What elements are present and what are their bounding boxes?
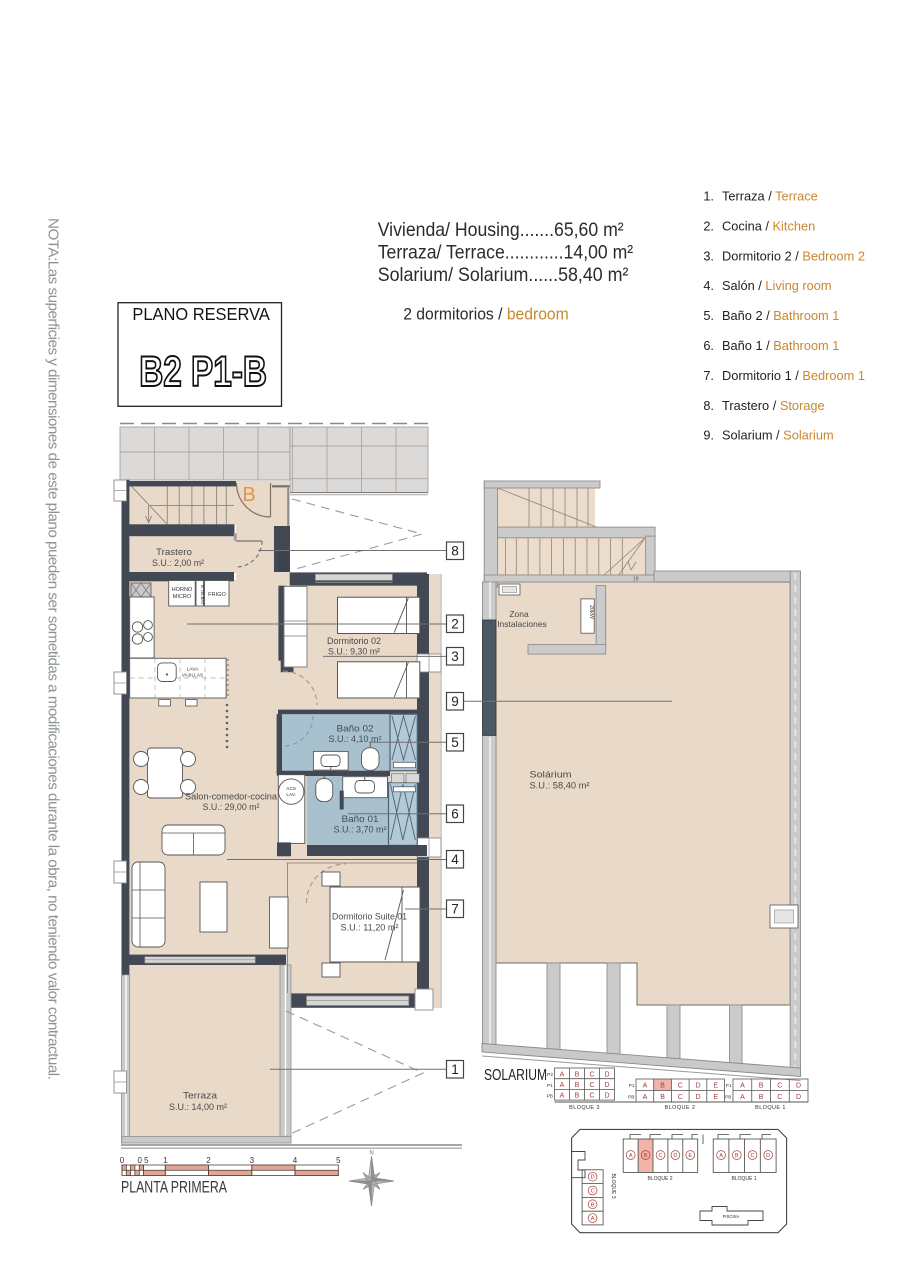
svg-text:B: B	[575, 1072, 580, 1079]
svg-text:D: D	[604, 1093, 609, 1100]
svg-text:8.: 8.	[703, 398, 714, 413]
svg-text:PLANTA PRIMERA: PLANTA PRIMERA	[121, 1179, 227, 1197]
svg-text:9.: 9.	[703, 428, 714, 443]
svg-text:5.: 5.	[703, 308, 714, 323]
svg-text:D: D	[695, 1094, 700, 1101]
svg-text:BLOQUE 2: BLOQUE 2	[647, 1176, 672, 1182]
svg-text:S.U.: 9,30 m²: S.U.: 9,30 m²	[328, 647, 380, 658]
svg-text:A: A	[643, 1094, 648, 1101]
svg-text:D: D	[591, 1175, 595, 1181]
svg-text:A: A	[740, 1083, 745, 1090]
svg-text:B: B	[660, 1083, 665, 1090]
svg-text:LAVA: LAVA	[187, 667, 199, 673]
svg-text:A: A	[719, 1153, 723, 1159]
svg-text:7.: 7.	[703, 368, 714, 383]
svg-text:PLANO RESERVA: PLANO RESERVA	[132, 304, 270, 324]
svg-text:4: 4	[451, 852, 459, 867]
svg-text:8: 8	[451, 544, 459, 559]
svg-text:C: C	[658, 1153, 662, 1159]
svg-text:D: D	[673, 1153, 677, 1159]
svg-text:B: B	[575, 1093, 580, 1100]
svg-text:Zona: Zona	[509, 609, 529, 619]
svg-text:A: A	[629, 1153, 633, 1159]
svg-text:B: B	[759, 1094, 764, 1101]
svg-text:3: 3	[250, 1156, 255, 1165]
svg-text:Terraza: Terraza	[183, 1091, 218, 1102]
svg-text:FRIGO: FRIGO	[208, 592, 226, 598]
svg-text:P1: P1	[547, 1083, 553, 1089]
svg-text:1.: 1.	[703, 189, 714, 204]
svg-text:A: A	[560, 1093, 565, 1100]
svg-text:S.U.: 29,00 m²: S.U.: 29,00 m²	[203, 802, 260, 813]
svg-text:S.U.: 3,70 m²: S.U.: 3,70 m²	[334, 825, 387, 835]
svg-text:C: C	[591, 1189, 595, 1195]
svg-text:HORNO: HORNO	[172, 587, 193, 593]
svg-text:C: C	[678, 1094, 683, 1101]
svg-text:0 5: 0 5	[137, 1156, 149, 1165]
svg-text:Vivienda/ Housing.......65,60: Vivienda/ Housing.......65,60 m²	[378, 219, 624, 241]
svg-text:4.: 4.	[703, 278, 714, 293]
svg-text:B: B	[660, 1094, 665, 1101]
svg-text:C: C	[777, 1083, 782, 1090]
svg-text:Trastero / Storage: Trastero / Storage	[722, 398, 825, 413]
svg-text:Baño 02: Baño 02	[337, 724, 374, 734]
svg-text:P2: P2	[547, 1072, 553, 1078]
svg-text:20kW: 20kW	[588, 605, 594, 620]
svg-text:Cocina / Kitchen: Cocina / Kitchen	[722, 218, 815, 233]
svg-text:4: 4	[293, 1156, 298, 1165]
svg-text:C: C	[777, 1094, 782, 1101]
svg-text:Baño 1 / Bathroom 1: Baño 1 / Bathroom 1	[722, 338, 839, 353]
svg-text:E: E	[713, 1094, 718, 1101]
svg-text:6.: 6.	[703, 338, 714, 353]
svg-text:B: B	[591, 1202, 595, 1208]
svg-text:A: A	[643, 1083, 648, 1090]
svg-text:PB: PB	[725, 1095, 731, 1101]
svg-text:B2 P1-B: B2 P1-B	[139, 348, 267, 396]
svg-text:D: D	[695, 1083, 700, 1090]
svg-text:Terraza/ Terrace............14: Terraza/ Terrace............14,00 m²	[378, 241, 634, 263]
svg-text:S.U.: 58,40 m²: S.U.: 58,40 m²	[530, 781, 590, 792]
svg-text:NOTA:Las superficies y dimensi: NOTA:Las superficies y dimensiones de es…	[45, 218, 62, 1079]
svg-text:Solarium / Solarium: Solarium / Solarium	[722, 428, 834, 443]
svg-text:A: A	[740, 1094, 745, 1101]
svg-text:BLOQUE 3: BLOQUE 3	[610, 1173, 616, 1198]
svg-text:BLOQUE 1: BLOQUE 1	[731, 1176, 756, 1182]
svg-text:Solarium/ Solarium......58,40: Solarium/ Solarium......58,40 m²	[378, 264, 629, 286]
svg-text:D: D	[766, 1153, 770, 1159]
svg-text:P1: P1	[629, 1083, 635, 1089]
svg-text:9: 9	[451, 694, 459, 709]
svg-text:D: D	[604, 1082, 609, 1089]
svg-text:Solárium: Solárium	[530, 770, 572, 781]
svg-text:0: 0	[120, 1156, 125, 1165]
svg-text:S.U.: 2,00 m²: S.U.: 2,00 m²	[152, 558, 204, 569]
svg-text:PISCINA: PISCINA	[723, 1214, 740, 1219]
svg-text:7: 7	[451, 902, 459, 917]
svg-text:B: B	[735, 1153, 739, 1159]
svg-text:Dormitorio 02: Dormitorio 02	[327, 636, 381, 647]
svg-text:S.U.: 11,20 m²: S.U.: 11,20 m²	[341, 923, 399, 934]
svg-text:1: 1	[163, 1156, 168, 1165]
svg-text:5: 5	[451, 735, 459, 750]
svg-text:BLOQUE 1: BLOQUE 1	[755, 1105, 786, 1111]
svg-text:1: 1	[451, 1062, 459, 1077]
svg-text:B: B	[575, 1082, 580, 1089]
svg-text:VAJILLAS: VAJILLAS	[182, 673, 204, 679]
svg-text:A: A	[591, 1216, 595, 1222]
svg-text:19: 19	[633, 577, 639, 583]
svg-text:6: 6	[451, 807, 459, 822]
svg-text:3: 3	[451, 649, 459, 664]
svg-text:2: 2	[206, 1156, 211, 1165]
svg-text:Dormitorio 2 / Bedroom 2: Dormitorio 2 / Bedroom 2	[722, 248, 865, 263]
svg-text:D: D	[796, 1083, 801, 1090]
svg-text:A: A	[560, 1082, 565, 1089]
svg-text:B: B	[644, 1153, 648, 1159]
svg-text:C: C	[589, 1072, 594, 1079]
svg-text:BLOQUE 3: BLOQUE 3	[569, 1105, 600, 1111]
svg-text:Terraza / Terrace: Terraza / Terrace	[722, 189, 818, 204]
svg-text:C: C	[589, 1093, 594, 1100]
svg-text:Dormitorio Suite 01: Dormitorio Suite 01	[332, 912, 407, 923]
svg-text:LAV.: LAV.	[286, 792, 296, 798]
svg-text:3.: 3.	[703, 248, 714, 263]
svg-text:P1: P1	[726, 1083, 732, 1089]
svg-text:Salon-comedor-cocina: Salon-comedor-cocina	[185, 792, 278, 803]
svg-text:C: C	[678, 1083, 683, 1090]
svg-text:E: E	[688, 1153, 692, 1159]
svg-text:E: E	[713, 1083, 718, 1090]
svg-text:Instalaciones: Instalaciones	[497, 619, 547, 629]
svg-text:B: B	[242, 484, 255, 506]
svg-text:Dormitorio 1 / Bedroom 1: Dormitorio 1 / Bedroom 1	[722, 368, 865, 383]
svg-text:Baño 01: Baño 01	[342, 814, 379, 824]
svg-text:MICRO: MICRO	[173, 594, 192, 600]
svg-text:N: N	[369, 1151, 373, 1157]
svg-text:Trastero: Trastero	[156, 547, 192, 558]
svg-text:PB: PB	[547, 1094, 553, 1100]
svg-text:D: D	[796, 1094, 801, 1101]
svg-text:S.U.: 14,00 m²: S.U.: 14,00 m²	[169, 1102, 227, 1113]
svg-text:ACS: ACS	[286, 786, 296, 792]
svg-text:C: C	[589, 1082, 594, 1089]
svg-text:Baño 2 / Bathroom 1: Baño 2 / Bathroom 1	[722, 308, 839, 323]
svg-text:D: D	[604, 1072, 609, 1079]
svg-text:B: B	[759, 1083, 764, 1090]
svg-text:2.: 2.	[703, 218, 714, 233]
svg-text:2 dormitorios / bedroom: 2 dormitorios / bedroom	[403, 306, 569, 324]
svg-text:A: A	[560, 1072, 565, 1079]
svg-text:Salón / Living room: Salón / Living room	[722, 278, 832, 293]
svg-text:2: 2	[451, 617, 459, 632]
svg-text:SOLARIUM: SOLARIUM	[484, 1067, 547, 1084]
svg-text:BLOQUE 2: BLOQUE 2	[665, 1105, 696, 1111]
svg-text:5: 5	[336, 1156, 341, 1165]
svg-text:C: C	[750, 1153, 754, 1159]
svg-text:PB: PB	[628, 1095, 634, 1101]
